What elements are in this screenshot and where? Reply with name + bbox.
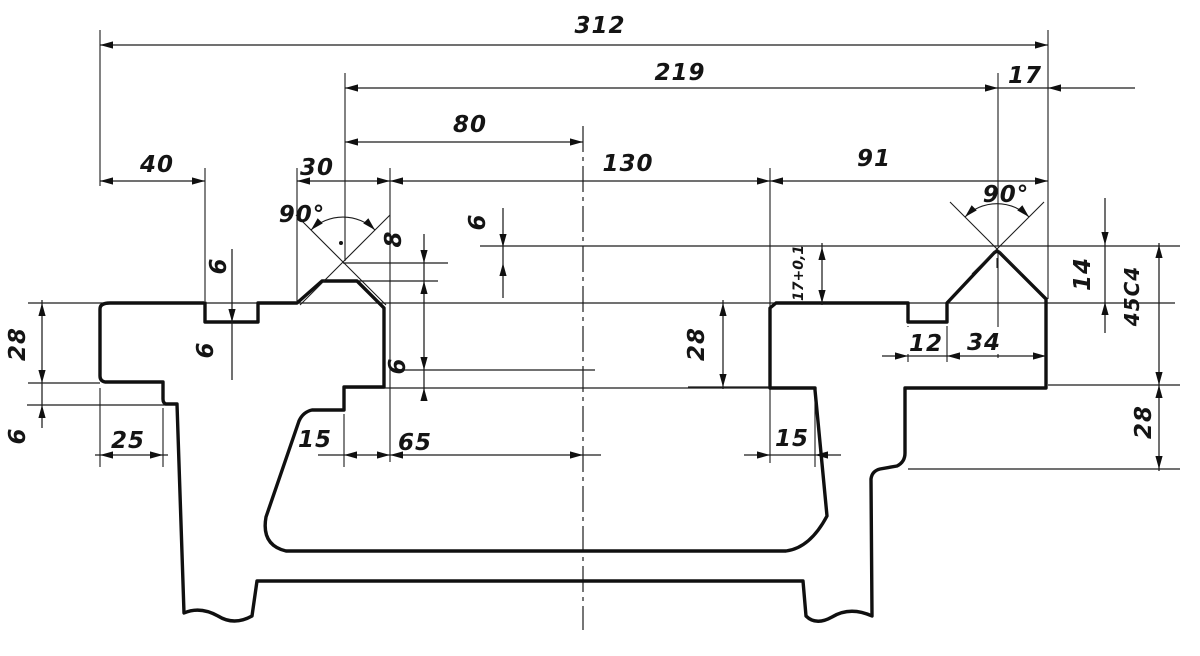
part-outline (100, 252, 1046, 622)
cross-section-drawing: 312 219 17 80 40 30 130 91 90° 90° 25 15… (0, 0, 1200, 656)
dim-15-left: 15 (298, 427, 332, 453)
dim-8-ridge: 8 (381, 230, 407, 247)
dim-6-notch: 6 (206, 257, 232, 274)
dim-6-under: 6 (385, 357, 411, 374)
angle-construction (296, 202, 1044, 305)
dim-6-inset: 6 (193, 341, 219, 358)
dim-28-slab: 28 (684, 327, 710, 361)
extension-lines (27, 30, 1180, 630)
dim-219: 219 (654, 60, 705, 86)
dim-17-tol: 17+0,1 (791, 245, 807, 301)
dim-28-flange: 28 (5, 327, 31, 361)
dim-45c4: 45C4 (1120, 266, 1144, 327)
angle-right-label: 90° (983, 182, 1030, 208)
dim-6-apex: 6 (465, 213, 491, 230)
dim-130: 130 (602, 151, 653, 177)
dim-80: 80 (453, 112, 487, 138)
dim-40: 40 (139, 152, 174, 178)
dim-14: 14 (1070, 257, 1096, 291)
dim-15-right: 15 (775, 426, 809, 452)
dim-6-flange: 6 (5, 427, 31, 444)
angle-left-label: 90° (279, 202, 326, 228)
dim-25: 25 (111, 428, 145, 454)
casting-section (100, 252, 1046, 622)
dim-17: 17 (1008, 63, 1042, 89)
dim-91: 91 (857, 146, 891, 172)
dim-34: 34 (967, 330, 1001, 356)
dim-28-leg: 28 (1131, 405, 1157, 439)
dim-12: 12 (909, 331, 943, 357)
label-clearings (201, 327, 1006, 372)
dim-65: 65 (398, 430, 432, 456)
dim-30: 30 (300, 155, 334, 181)
drawing-sheet: 312 219 17 80 40 30 130 91 90° 90° 25 15… (0, 0, 1200, 656)
dim-overall-width: 312 (574, 13, 625, 39)
